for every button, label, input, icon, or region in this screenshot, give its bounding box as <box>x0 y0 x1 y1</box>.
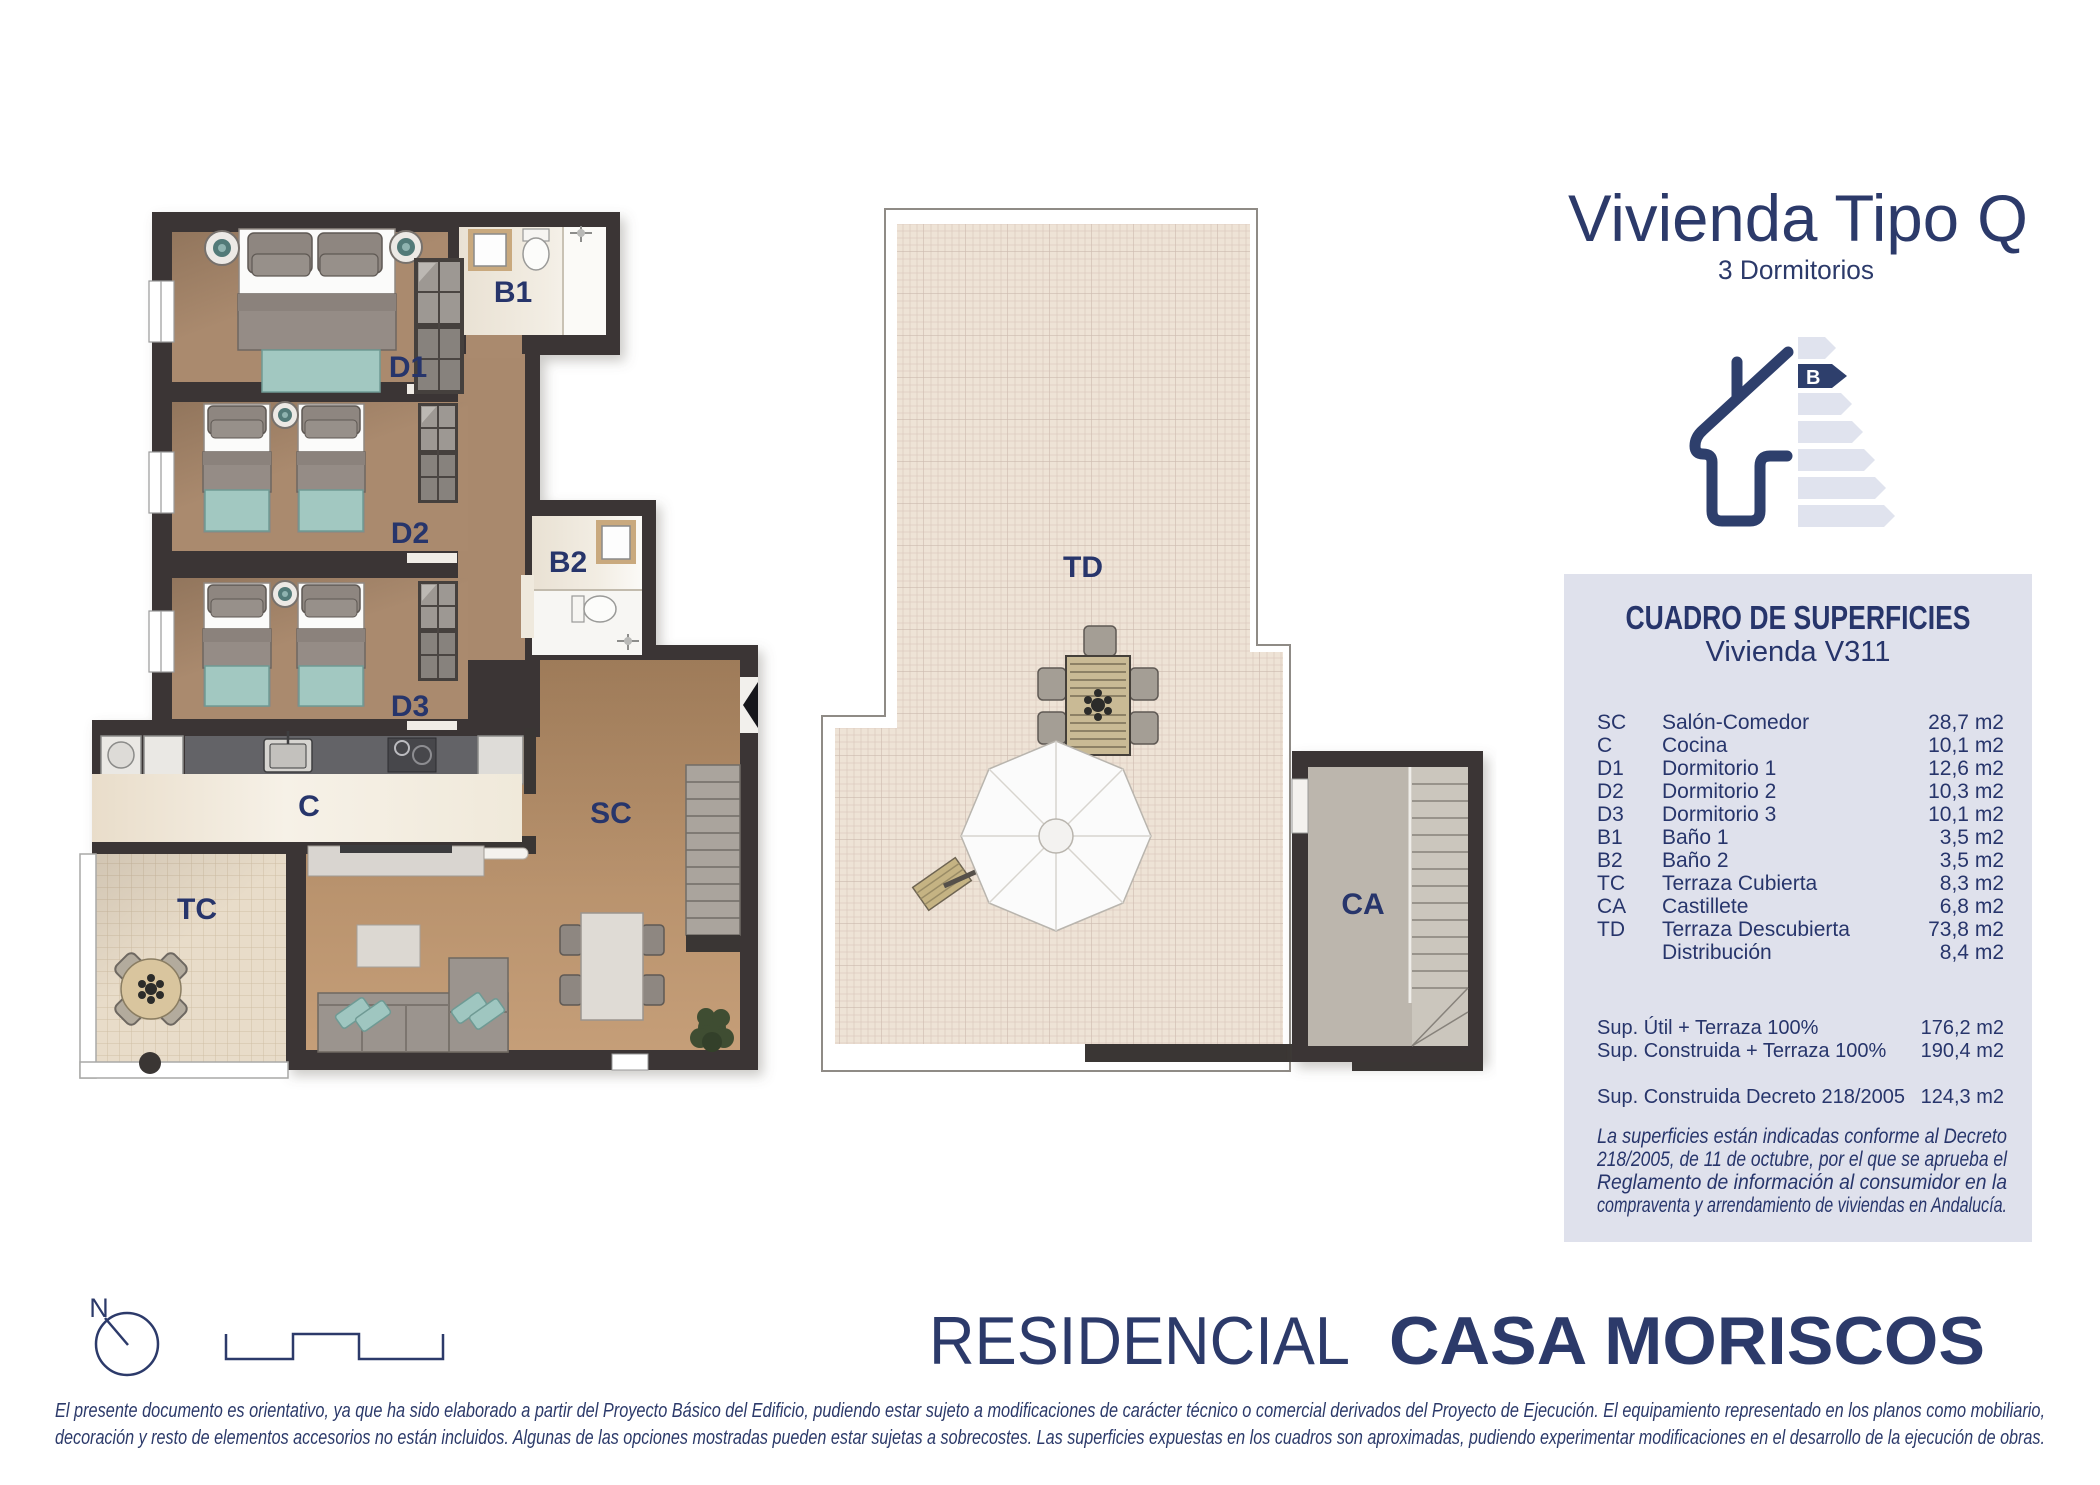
svg-text:10,3 m2: 10,3 m2 <box>1928 780 2004 803</box>
svg-text:El presente documento es orien: El presente documento es orientativo, ya… <box>55 1400 2045 1422</box>
svg-text:SC: SC <box>590 797 632 830</box>
svg-text:Dormitorio 1: Dormitorio 1 <box>1662 757 1776 780</box>
svg-text:Terraza Cubierta: Terraza Cubierta <box>1662 872 1818 895</box>
svg-text:3 Dormitorios: 3 Dormitorios <box>1718 255 1874 285</box>
svg-text:Salón-Comedor: Salón-Comedor <box>1662 711 1809 734</box>
svg-text:TC: TC <box>1597 872 1625 895</box>
svg-text:Baño 1: Baño 1 <box>1662 826 1729 849</box>
svg-text:Sup. Construida + Terraza 100%: Sup. Construida + Terraza 100% <box>1597 1040 1886 1062</box>
svg-text:C: C <box>1597 734 1612 757</box>
svg-text:B1: B1 <box>1597 826 1623 849</box>
svg-text:8,3 m2: 8,3 m2 <box>1940 872 2004 895</box>
svg-text:Sup. Construida Decreto 218/20: Sup. Construida Decreto 218/2005 <box>1597 1086 1905 1108</box>
svg-text:Distribución: Distribución <box>1662 941 1772 964</box>
svg-text:B2: B2 <box>1597 849 1623 872</box>
svg-text:D2: D2 <box>1597 780 1624 803</box>
svg-text:3,5 m2: 3,5 m2 <box>1940 849 2004 872</box>
svg-text:28,7 m2: 28,7 m2 <box>1928 711 2004 734</box>
svg-text:CUADRO DE SUPERFICIES: CUADRO DE SUPERFICIES <box>1626 599 1971 636</box>
svg-text:73,8 m2: 73,8 m2 <box>1928 918 2004 941</box>
svg-text:D1: D1 <box>389 351 427 384</box>
svg-text:10,1 m2: 10,1 m2 <box>1928 734 2004 757</box>
svg-text:CASA MORISCOS: CASA MORISCOS <box>1389 1303 1985 1379</box>
svg-text:Cocina: Cocina <box>1662 734 1728 757</box>
svg-text:CA: CA <box>1597 895 1626 918</box>
svg-text:Dormitorio 3: Dormitorio 3 <box>1662 803 1776 826</box>
svg-text:Baño 2: Baño 2 <box>1662 849 1729 872</box>
svg-text:Sup. Útil + Terraza 100%: Sup. Útil + Terraza 100% <box>1597 1016 1819 1039</box>
svg-text:Reglamento de información al c: Reglamento de información al consumidor … <box>1597 1171 2007 1194</box>
svg-text:8,4 m2: 8,4 m2 <box>1940 941 2004 964</box>
svg-text:SC: SC <box>1597 711 1626 734</box>
svg-text:C: C <box>298 790 320 823</box>
svg-text:D3: D3 <box>391 690 429 723</box>
svg-text:D2: D2 <box>391 517 429 550</box>
svg-text:10,1 m2: 10,1 m2 <box>1928 803 2004 826</box>
svg-text:Terraza Descubierta: Terraza Descubierta <box>1662 918 1850 941</box>
svg-text:RESIDENCIAL: RESIDENCIAL <box>929 1303 1350 1379</box>
svg-text:B: B <box>1806 367 1820 389</box>
svg-text:176,2 m2: 176,2 m2 <box>1921 1017 2004 1039</box>
svg-text:TC: TC <box>177 893 217 926</box>
svg-text:D1: D1 <box>1597 757 1624 780</box>
svg-text:190,4 m2: 190,4 m2 <box>1921 1040 2004 1062</box>
svg-text:B2: B2 <box>549 546 587 579</box>
svg-text:Dormitorio 2: Dormitorio 2 <box>1662 780 1776 803</box>
svg-text:12,6 m2: 12,6 m2 <box>1928 757 2004 780</box>
svg-text:CA: CA <box>1341 888 1384 921</box>
svg-text:N: N <box>89 1293 109 1323</box>
svg-text:decoración y resto de elemento: decoración y resto de elementos accesori… <box>55 1427 2045 1449</box>
svg-text:TD: TD <box>1063 551 1103 584</box>
svg-text:D3: D3 <box>1597 803 1624 826</box>
svg-text:Vivienda Tipo Q: Vivienda Tipo Q <box>1568 181 2028 255</box>
svg-text:Vivienda V311: Vivienda V311 <box>1706 636 1891 668</box>
svg-text:3,5 m2: 3,5 m2 <box>1940 826 2004 849</box>
svg-text:6,8 m2: 6,8 m2 <box>1940 895 2004 918</box>
svg-text:compraventa y arrendamiento de: compraventa y arrendamiento de viviendas… <box>1597 1194 2007 1217</box>
svg-text:Castillete: Castillete <box>1662 895 1748 918</box>
svg-text:TD: TD <box>1597 918 1625 941</box>
svg-text:B1: B1 <box>494 276 532 309</box>
svg-text:La superficies están indicadas: La superficies están indicadas conforme … <box>1597 1125 2007 1148</box>
svg-text:218/2005, de 11 de octubre, po: 218/2005, de 11 de octubre, por el que s… <box>1596 1148 2008 1171</box>
svg-text:124,3 m2: 124,3 m2 <box>1921 1086 2004 1108</box>
